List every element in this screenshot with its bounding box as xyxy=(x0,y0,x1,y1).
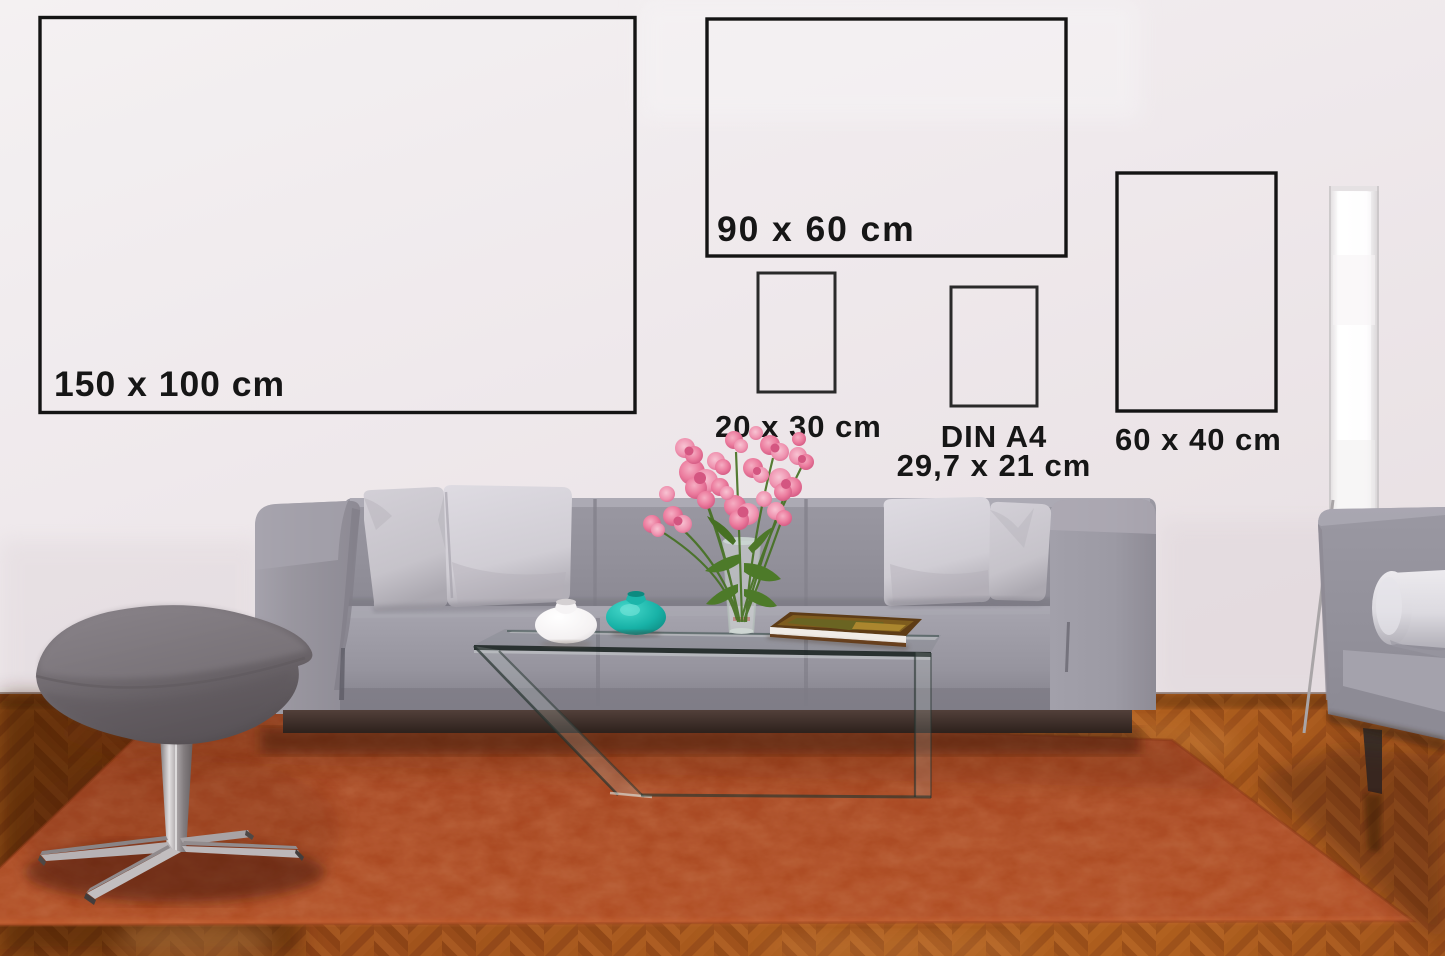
svg-text:150 x 100 cm: 150 x 100 cm xyxy=(54,364,285,404)
svg-text:29,7 x 21 cm: 29,7 x 21 cm xyxy=(897,448,1092,483)
svg-text:60 x 40 cm: 60 x 40 cm xyxy=(1115,422,1282,457)
svg-text:90 x 60 cm: 90 x 60 cm xyxy=(717,209,916,249)
